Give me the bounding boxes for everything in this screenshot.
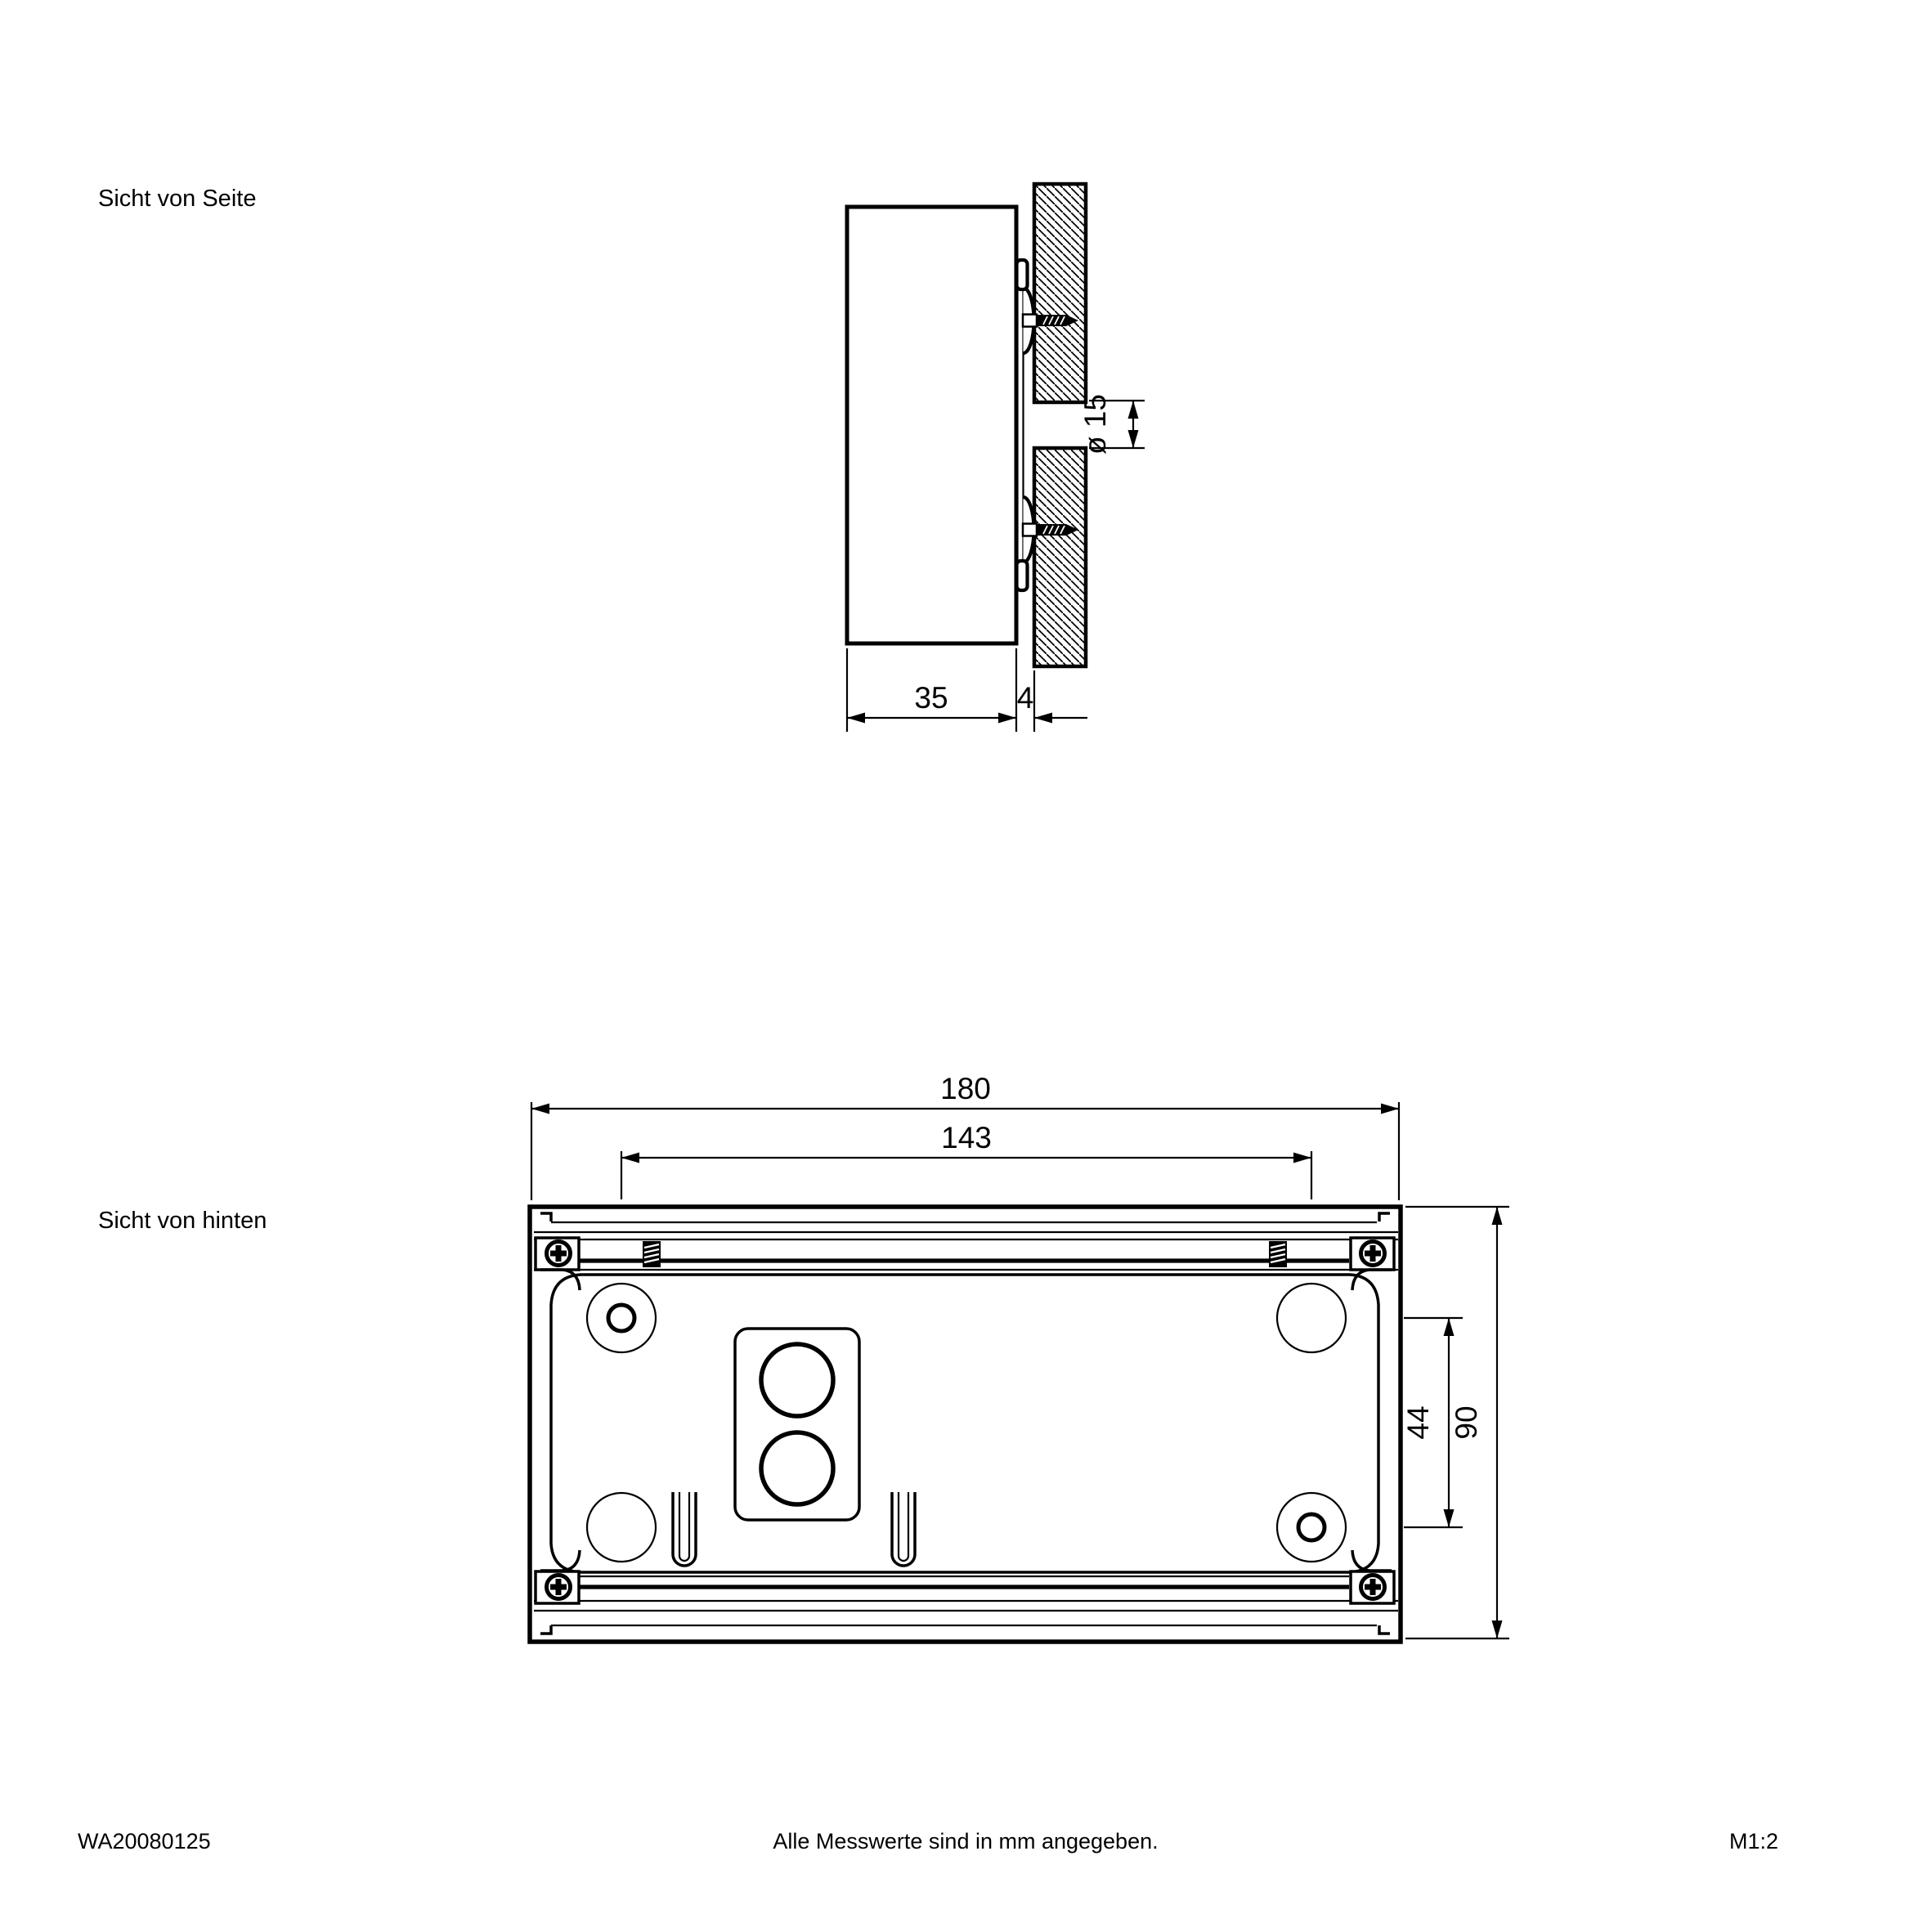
spring-clip-left (643, 1241, 661, 1267)
spring-clip-right (1269, 1241, 1287, 1267)
scale-label: M1:2 (1729, 1829, 1778, 1854)
fixture-body (847, 207, 1016, 643)
wall-section-upper (1034, 184, 1086, 402)
dim-height-value: 90 (1450, 1405, 1483, 1439)
rear-view: Sicht von hinten (98, 1072, 1509, 1642)
drawing-number: WA20080125 (78, 1829, 211, 1854)
corner-screw-tl (547, 1242, 571, 1266)
corner-screw-bl (547, 1576, 571, 1599)
wall-section-lower (1034, 448, 1086, 666)
technical-drawing: Sicht von Seite (0, 0, 1932, 1932)
knockout-hole-upper (761, 1344, 833, 1416)
dim-depth-value: 35 (914, 681, 948, 715)
measurement-note: Alle Messwerte sind in mm angegeben. (773, 1829, 1158, 1854)
side-view-label: Sicht von Seite (98, 186, 256, 212)
side-view: Sicht von Seite (98, 184, 1145, 732)
knockout-hole-lower (761, 1432, 833, 1504)
mount-recess-bottom-left (587, 1493, 656, 1562)
rear-view-label: Sicht von hinten (98, 1208, 267, 1234)
footer: WA20080125 Alle Messwerte sind in mm ang… (78, 1829, 1778, 1854)
mount-hole-bottom-right (1298, 1514, 1325, 1540)
dim-cable-hole-value: ø 15 (1078, 394, 1112, 455)
dim-offset-value: 4 (1017, 681, 1034, 715)
mount-recess-top-right (1277, 1284, 1346, 1352)
plate-strip (1018, 288, 1024, 563)
dim-cable-hole: ø 15 (1078, 394, 1145, 455)
dim-hole-spacing-v-value: 44 (1401, 1405, 1435, 1439)
dim-width-value: 180 (940, 1072, 991, 1105)
corner-screw-tr (1361, 1242, 1385, 1266)
dim-hole-spacing-h-value: 143 (941, 1121, 992, 1154)
mounting-plate (1017, 260, 1034, 590)
dim-hole-spacing-h: 143 (621, 1121, 1311, 1199)
mount-hole-top-left (608, 1305, 634, 1331)
knockout-plate (735, 1329, 859, 1520)
corner-screw-br (1361, 1576, 1385, 1599)
